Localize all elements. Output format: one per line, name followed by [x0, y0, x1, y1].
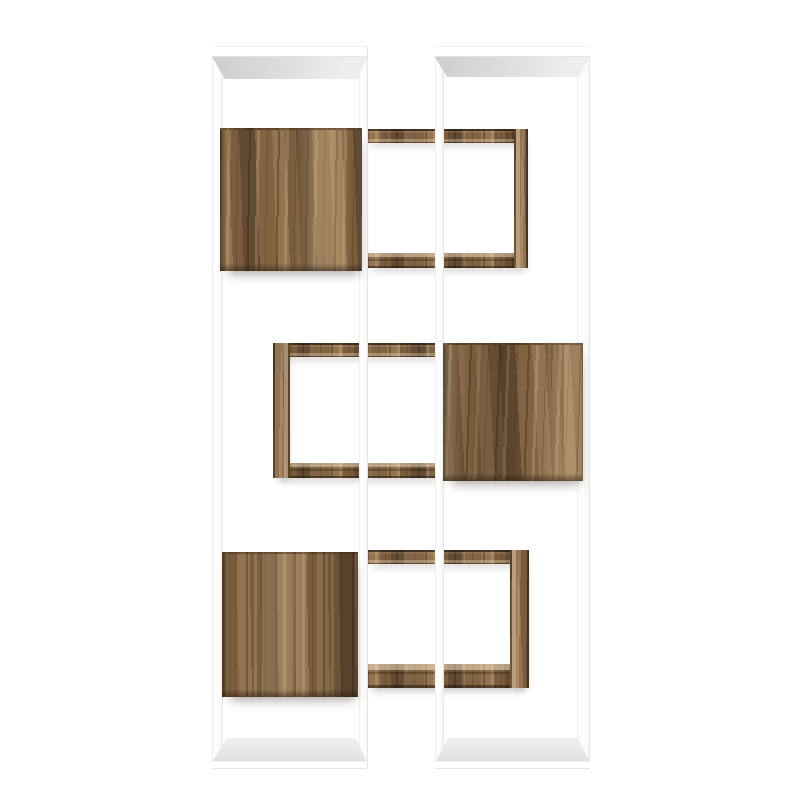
open-box-bottom-side-right [510, 550, 529, 688]
right-frame-floor-panel [435, 738, 590, 762]
open-box-middle-side-left [273, 343, 290, 478]
open-box-top-shelf-lower [367, 253, 528, 268]
open-box-bottom-shelf-upper [367, 550, 528, 564]
right-frame-top-bar [435, 46, 590, 57]
walnut-door-bottom-left [222, 552, 358, 697]
right-frame-top-underside [435, 57, 590, 77]
bookcase-product-image [0, 0, 800, 800]
open-box-top-side-right [514, 129, 528, 268]
right-frame-bottom-bar [435, 761, 590, 769]
open-box-top-shelf-upper [367, 129, 528, 143]
open-box-middle-shelf-upper [273, 343, 443, 357]
left-frame-top-bar [212, 46, 367, 57]
open-box-middle-shelf-lower [273, 463, 443, 478]
left-frame-floor-panel [212, 738, 367, 762]
walnut-door-middle-right [443, 343, 583, 481]
left-frame-bottom-bar [212, 761, 367, 769]
open-box-bottom-shelf-lower [367, 664, 528, 688]
walnut-door-top-left [220, 128, 362, 271]
left-frame-top-underside [212, 57, 367, 79]
